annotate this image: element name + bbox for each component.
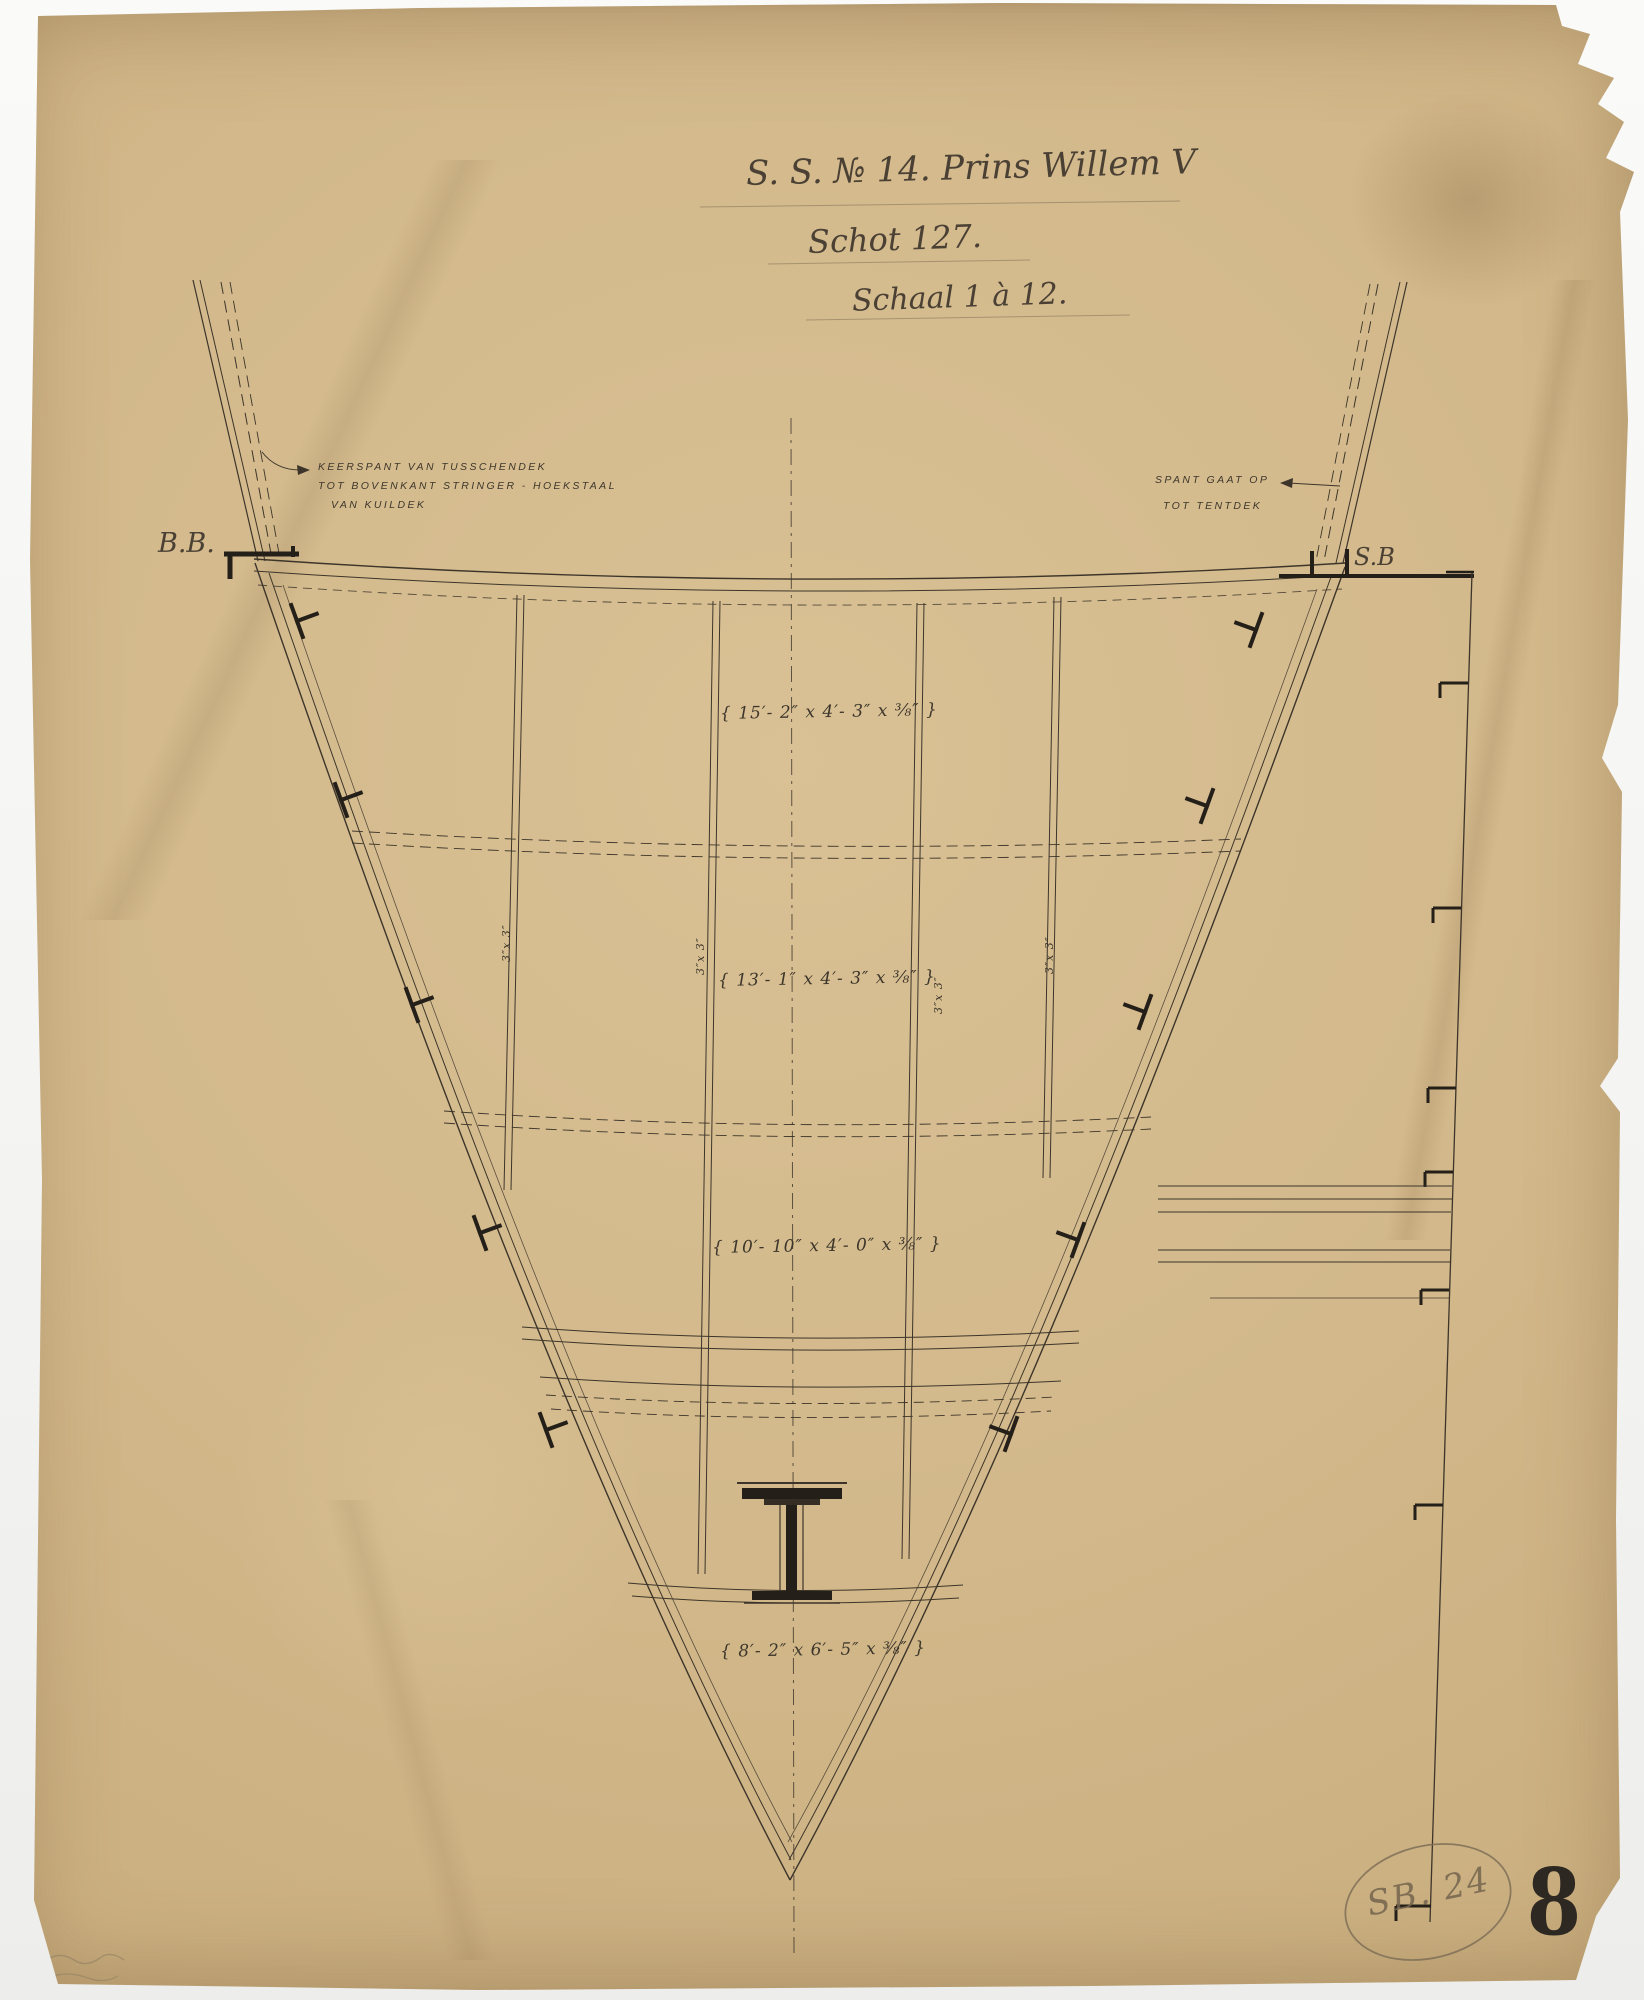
plate-dimension-upper: { 15′- 2″ x 4′- 3″ x ⅜″ }: [720, 700, 938, 724]
pencil-scribbles: [44, 1954, 124, 1980]
frame-extension-port: [193, 280, 280, 561]
right-annotation-line1: SPANT GAAT OP: [1155, 474, 1269, 486]
stiffener-size-label: 3″x 3″: [1043, 936, 1056, 974]
stiffener-size-label: 3″x 3″: [932, 976, 945, 1014]
deck-beam: [254, 559, 1346, 605]
centerline: [791, 418, 794, 1958]
frame-extension-starboard: [1316, 282, 1407, 563]
side-clips-starboard: [985, 607, 1261, 1450]
left-annotation-line2: TOT BOVENKANT STRINGER - HOEKSTAAL: [318, 480, 617, 492]
left-annotation-line3: VAN KUILDEK: [331, 499, 426, 511]
bulkhead-stiffeners: [504, 595, 1061, 1574]
leader-arrow-right: [1280, 478, 1340, 488]
profile-view: [1158, 572, 1474, 1922]
plate-dimension-lower: { 8′- 2″ x 6′- 5″ x ⅜″ }: [720, 1638, 926, 1662]
leader-arrow-left: [262, 452, 310, 475]
right-annotation-line2: TOT TENTDEK: [1163, 500, 1262, 512]
port-side-label: B.B.: [158, 528, 215, 559]
center-pillar-ibeam: [737, 1483, 847, 1603]
drawing-sheet: S. S. № 14. Prins Willem V Schot 127. Sc…: [0, 0, 1644, 2000]
plate-seams: [352, 831, 1241, 1603]
stiffener-size-label: 3″x 3″: [694, 937, 707, 975]
hull-shell-starboard: [788, 567, 1345, 1880]
profile-deck-lines: [1158, 1186, 1452, 1298]
starboard-side-label: S.B: [1354, 543, 1395, 571]
corner-bracket-port: [224, 546, 299, 579]
plate-dimension-third: { 10′- 10″ x 4′- 0″ x ⅜″ }: [712, 1234, 942, 1258]
plate-dimension-second: { 13′- 1″ x 4′- 3″ x ⅜″ }: [718, 967, 936, 991]
stiffener-size-label: 3″x 3″: [500, 924, 513, 962]
drawing-scale: Schaal 1 à 12.: [851, 276, 1067, 318]
left-annotation-line1: KEERSPANT VAN TUSSCHENDEK: [318, 461, 547, 473]
side-clips-port: [291, 598, 571, 1446]
archive-stamp-number: 8: [1527, 1848, 1581, 1956]
bulkhead-drawing: [0, 0, 1644, 2000]
hull-shell-port: [255, 563, 792, 1880]
drawing-subtitle: Schot 127.: [807, 217, 982, 261]
